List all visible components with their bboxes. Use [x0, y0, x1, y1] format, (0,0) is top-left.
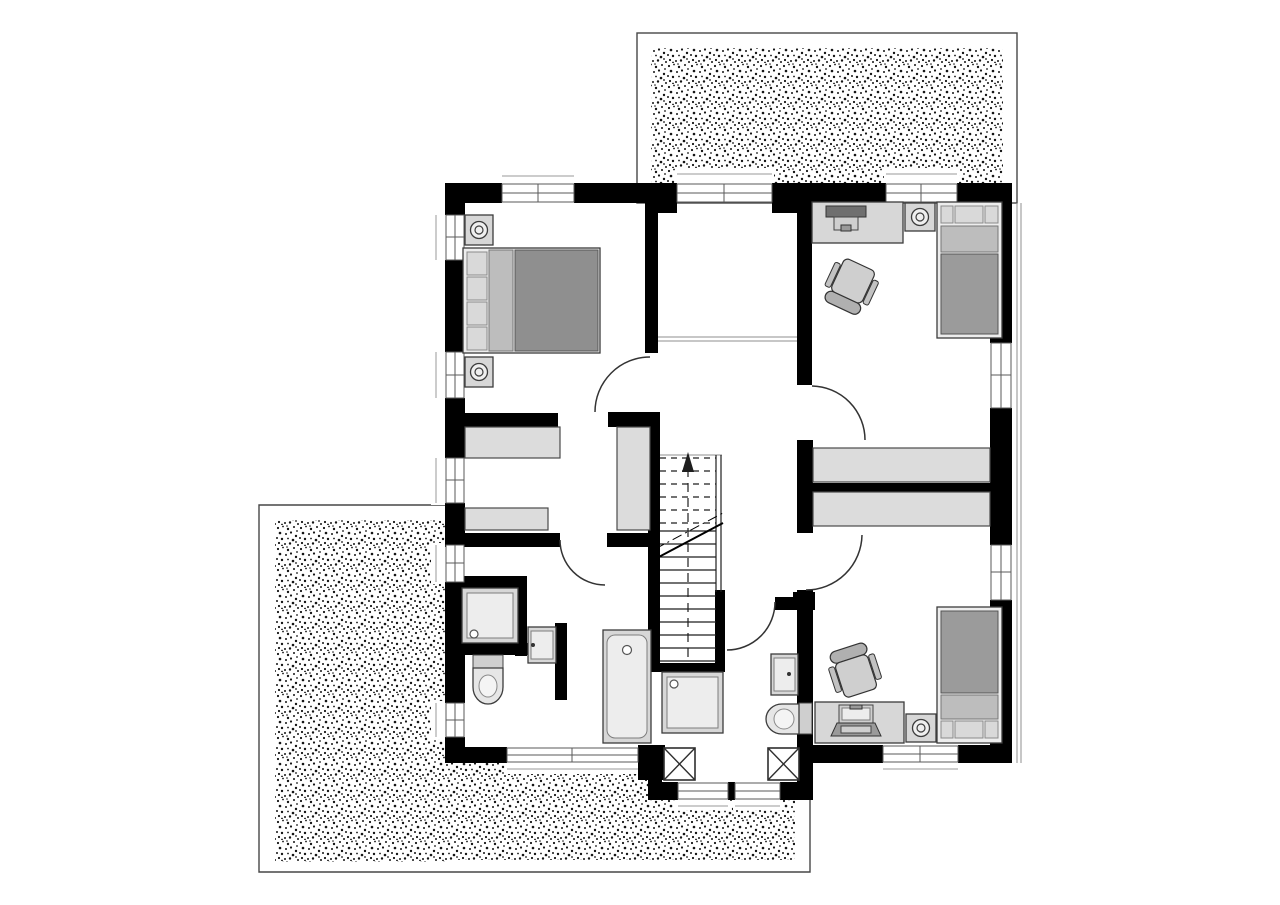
window: [507, 748, 638, 762]
single-bed: [937, 607, 1002, 743]
table-lamp: [913, 720, 930, 737]
faucet: [787, 672, 791, 676]
terrace-stipple: [651, 48, 1003, 183]
shower: [462, 588, 518, 643]
nightstand: [465, 357, 493, 387]
window: [883, 746, 958, 762]
room-bedroom: [463, 215, 600, 387]
nightstand: [465, 215, 493, 245]
nightstand: [906, 714, 936, 742]
laptop: [831, 705, 881, 736]
table-lamp: [912, 209, 929, 226]
window: [446, 703, 464, 737]
table-lamp: [471, 222, 488, 239]
window: [991, 545, 1011, 600]
window: [886, 184, 957, 202]
floor-plan-canvas: [0, 0, 1280, 905]
bathtub: [603, 630, 651, 743]
roof-edge-line: [1017, 203, 1021, 763]
toilet: [766, 703, 812, 734]
window: [678, 783, 728, 799]
room-child-1: [812, 202, 1002, 482]
floor-plan-svg: [0, 0, 1280, 905]
single-bed: [937, 202, 1002, 338]
room-dressing: [465, 427, 650, 530]
washbasin: [528, 627, 556, 663]
door-arc-bathroom-2: [727, 602, 775, 650]
built-in-wardrobe: [813, 448, 990, 482]
window: [446, 458, 464, 503]
shaft-boxes: [664, 748, 799, 780]
window: [502, 184, 574, 202]
window: [991, 343, 1011, 408]
gallery-railing-line: [658, 337, 797, 341]
staircase: [655, 452, 723, 661]
table-lamp: [471, 364, 488, 381]
door-arc-child-room-1: [812, 386, 865, 440]
bathtub-drain: [623, 646, 632, 655]
terrace-stipple: [275, 520, 445, 862]
shower-drain: [470, 630, 478, 638]
window: [735, 783, 780, 799]
toilet: [473, 655, 503, 704]
terrace-stipple: [445, 763, 648, 860]
washbasin: [771, 654, 798, 695]
wardrobe: [465, 508, 548, 530]
wardrobe: [617, 427, 650, 530]
stair-break-line: [655, 523, 723, 559]
window: [446, 352, 464, 398]
window: [677, 184, 772, 202]
door-arc-child-room-2: [806, 535, 862, 590]
office-chair: [824, 640, 884, 700]
window: [446, 545, 464, 582]
office-chair: [819, 255, 883, 319]
nightstand: [905, 203, 935, 231]
x-shaft: [664, 748, 695, 780]
double-bed: [463, 248, 600, 353]
door-arc-bedroom: [595, 357, 650, 412]
x-shaft: [768, 748, 799, 780]
terrace-bottom-left: [259, 505, 810, 872]
faucet: [531, 643, 535, 647]
shower: [662, 672, 723, 733]
door-arc-bathroom-1: [560, 540, 605, 585]
shower-drain: [670, 680, 678, 688]
wardrobe: [465, 427, 560, 458]
window: [446, 215, 464, 260]
room-child-2: [813, 492, 1002, 743]
built-in-wardrobe: [813, 492, 990, 526]
